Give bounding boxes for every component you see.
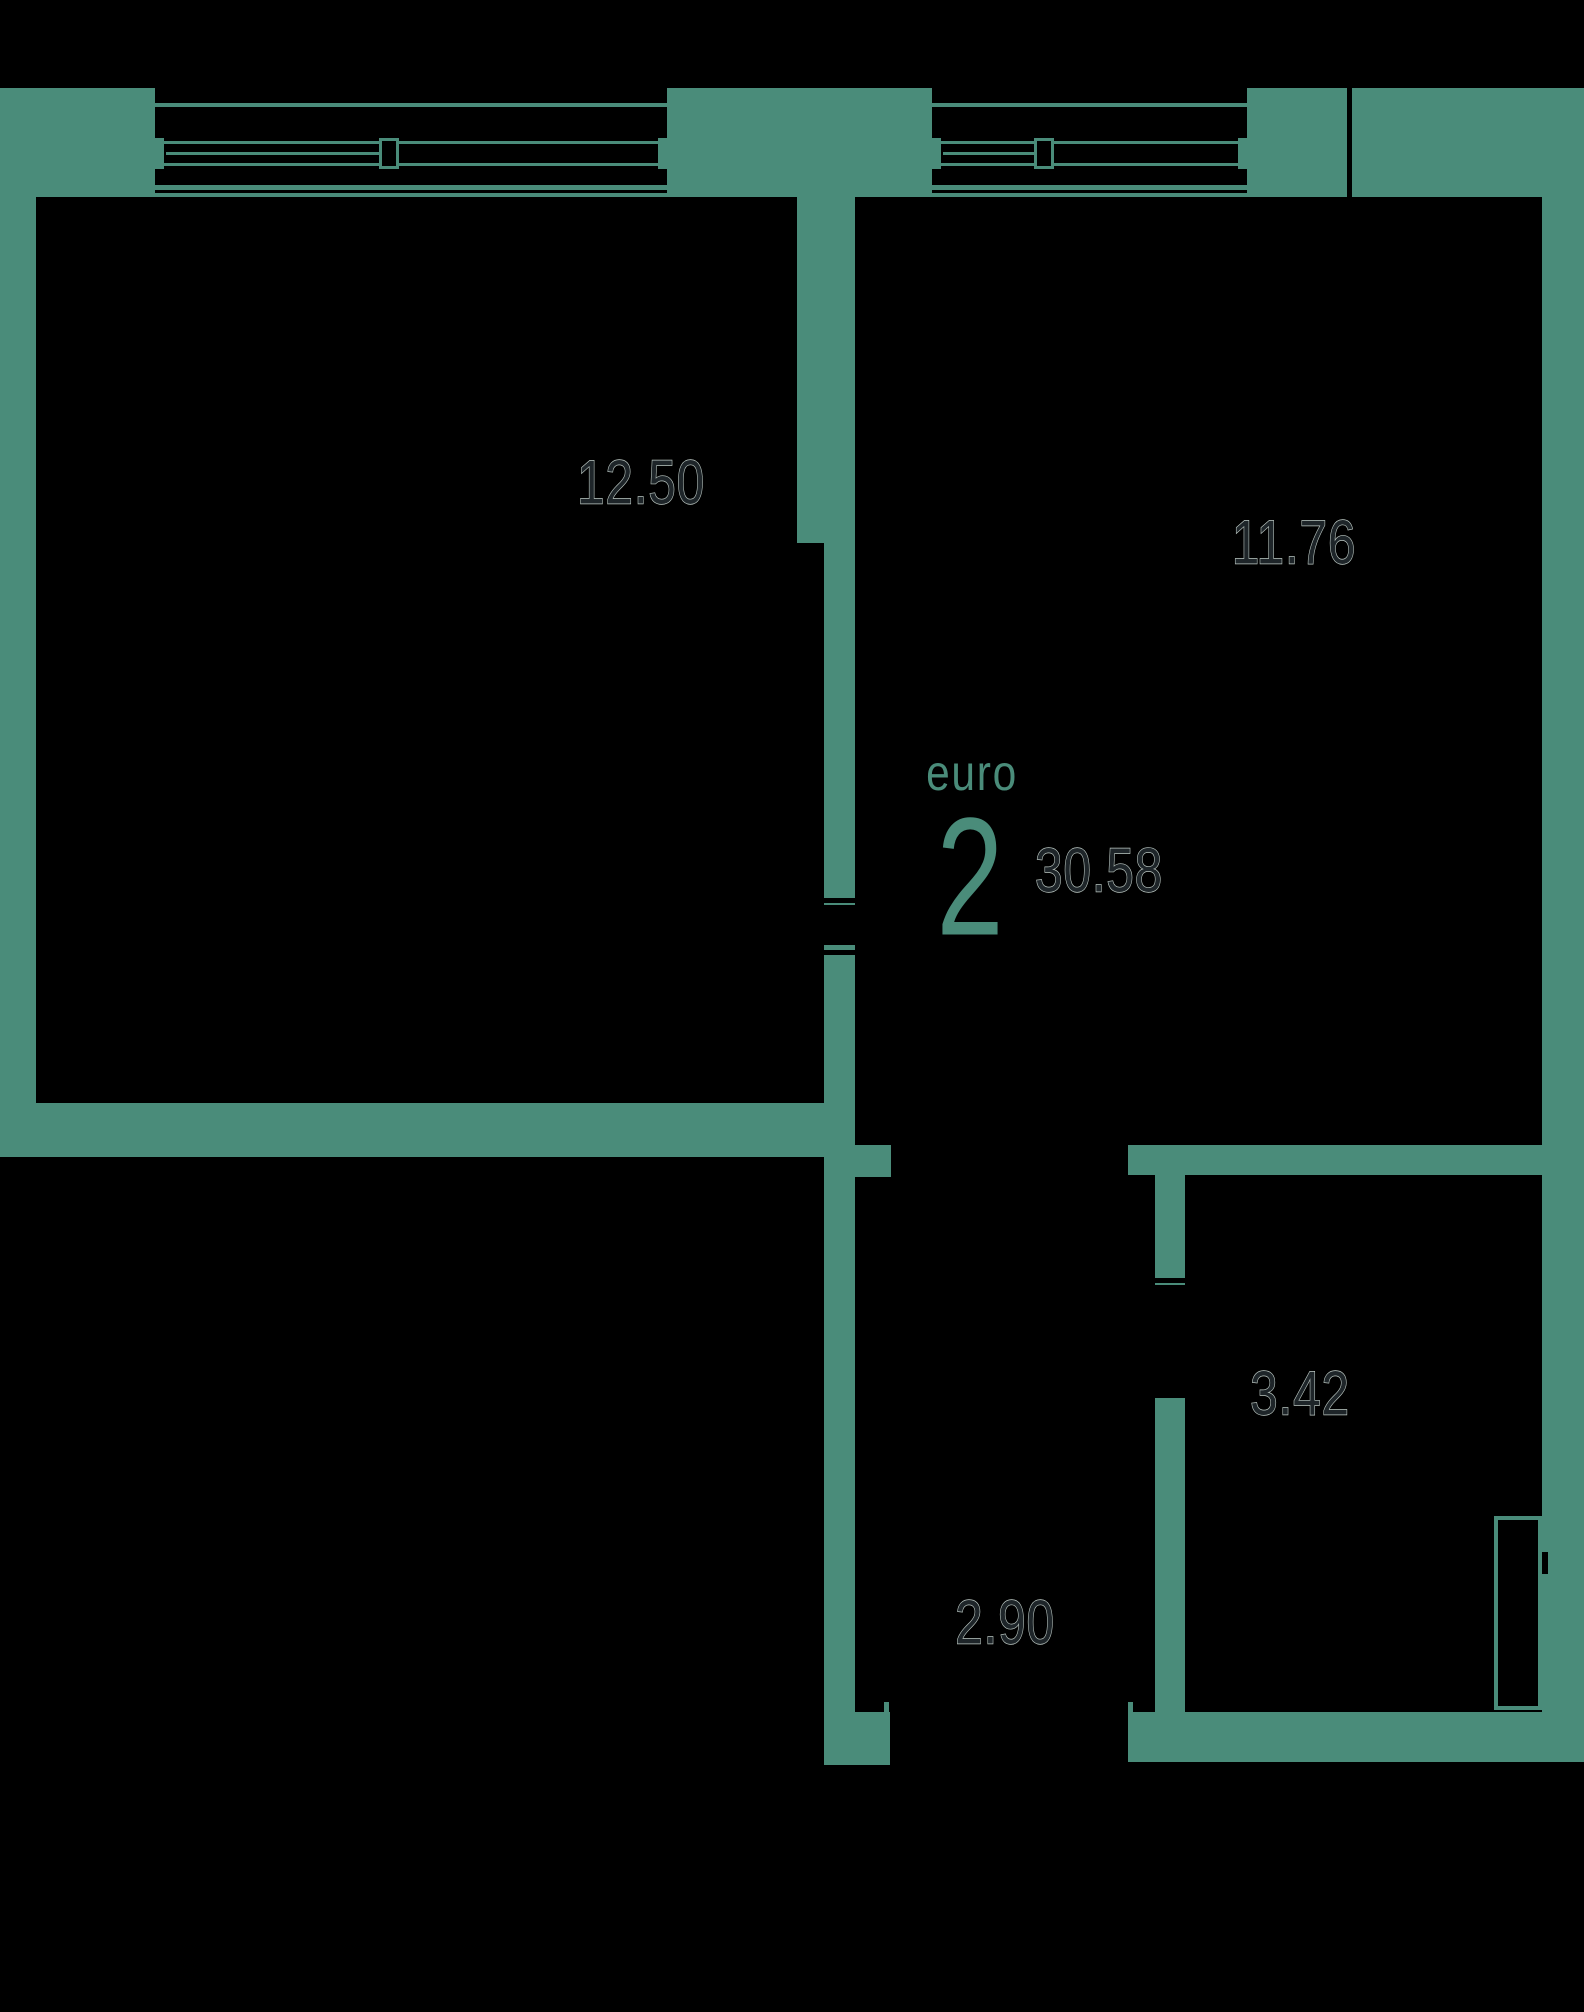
entry-jamb-left [884, 1702, 889, 1762]
window1-end-left [155, 138, 164, 169]
wall-bathroom-left-lower [1155, 1398, 1185, 1712]
window2-end-right [1238, 138, 1247, 169]
wall-room1-bottom [0, 1103, 828, 1157]
wall-bathroom-door-cap1 [1155, 1278, 1185, 1283]
wall-bathroom-left-upper [1155, 1175, 1185, 1285]
wall-mid-thin [824, 543, 855, 905]
window1-mullion [379, 138, 399, 169]
window1-sash-line [166, 152, 382, 155]
wall-joint-line [1347, 88, 1352, 197]
area-label-room1: 12.50 [577, 448, 705, 519]
wall-right-outer [1542, 197, 1584, 1757]
area-label-hallway: 2.90 [955, 1588, 1055, 1659]
bathroom-door-leaf [1494, 1516, 1542, 1710]
window2-sash-line [943, 152, 1037, 155]
window1-outer-line [155, 103, 667, 107]
window1-end-right [658, 138, 667, 169]
window1-sill-line [155, 185, 667, 190]
room-count-number: 2 [936, 781, 1003, 974]
window2-sill-line [932, 185, 1247, 190]
wall-left-outer [0, 88, 36, 1157]
wall-mid-thick [797, 197, 855, 543]
bathroom-door-notch [1542, 1552, 1548, 1574]
floorplan-canvas: 12.50 11.76 3.42 2.90 euro 2 30.58 [0, 0, 1584, 2012]
window1-sill-strip [155, 193, 667, 197]
area-label-bathroom: 3.42 [1250, 1359, 1350, 1430]
wall-hallway-cap [824, 950, 855, 955]
total-area-label: 30.58 [1035, 836, 1163, 907]
window2-mullion [1034, 138, 1054, 169]
wall-entry-foot [824, 1712, 890, 1765]
wall-mid-end-cap [824, 898, 855, 903]
wall-bottom-right [1128, 1712, 1584, 1762]
window2-end-left [932, 138, 941, 169]
window2-outer-line [932, 103, 1247, 107]
area-label-room2: 11.76 [1232, 508, 1356, 579]
wall-hallway-stub [853, 1145, 891, 1177]
wall-bathroom-top [1128, 1145, 1584, 1175]
window2-sill-strip [932, 193, 1247, 197]
wall-hallway-left [824, 945, 855, 1717]
wall-top-mid-block [667, 88, 932, 197]
wall-top-right-block [1247, 88, 1584, 197]
